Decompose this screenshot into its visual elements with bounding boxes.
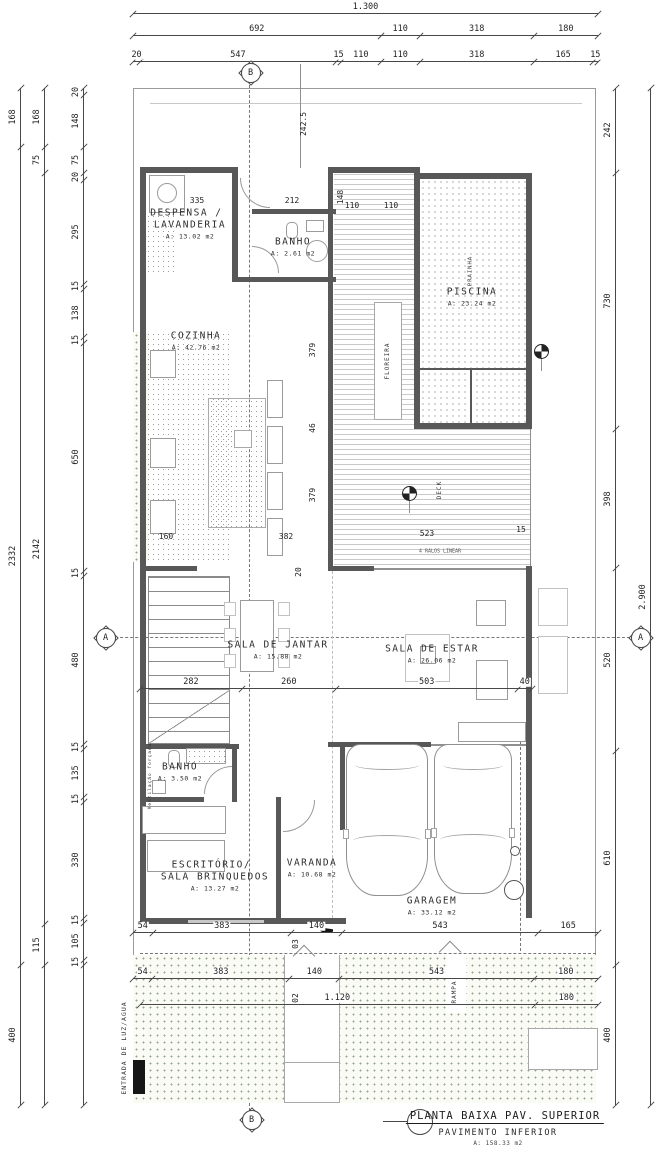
- deck-edge: [530, 429, 531, 566]
- dim-value: 610: [604, 849, 613, 866]
- inline-dim: 335: [189, 197, 205, 205]
- dim-value: 318: [468, 25, 485, 34]
- appliance: [150, 500, 176, 534]
- tiny-note: 4 RALOS LINEAR: [419, 549, 461, 555]
- room-label-jantar: SALA DE JANTARA: 15.88 m2: [227, 640, 328, 661]
- inline-dim: 382: [278, 533, 294, 541]
- office-sofa: [142, 806, 226, 834]
- dim-value: 318: [468, 51, 485, 60]
- room-label-varanda: VARANDAA: 10.68 m2: [287, 858, 338, 879]
- room-name: VARANDA: [287, 858, 338, 870]
- dim-value: 180: [558, 994, 575, 1003]
- dim-value: 242: [604, 122, 613, 139]
- wall-jantar-stub-mid: [328, 566, 374, 571]
- cabinet: [267, 426, 283, 464]
- column-circle: [510, 846, 520, 856]
- dim-value: 15: [332, 51, 344, 60]
- utility-box: [528, 1028, 598, 1070]
- dim-value: 54: [137, 968, 149, 977]
- car-windshield: [440, 834, 505, 846]
- room-label-garagem: GARAGEMA: 33.12 m2: [407, 896, 458, 917]
- wall-garage-left: [340, 742, 345, 830]
- dim-value: 2.900: [639, 583, 648, 611]
- dim-line-right-outer: [650, 88, 651, 1105]
- room-label-estar: SALA DE ESTARA: 26.06 m2: [385, 644, 479, 665]
- inline-dim: 110: [383, 202, 399, 210]
- car-mirror: [431, 828, 437, 838]
- car-rear-window: [443, 760, 504, 770]
- dim-line-left-outer: [20, 88, 21, 1105]
- dim-line-left-inner: [83, 88, 84, 1105]
- dim-value: 110: [392, 51, 409, 60]
- dining-table: [240, 600, 274, 672]
- dim-value: 383: [212, 968, 229, 977]
- dim-value: 1.300: [352, 3, 380, 12]
- dim-line-top-2: [133, 35, 598, 36]
- room-label-banho1: BANHOA: 2.61 m2: [271, 237, 315, 258]
- dim-value: 168: [9, 109, 18, 126]
- dim-value: 40: [519, 678, 531, 687]
- dim-value: 730: [604, 292, 613, 309]
- dim-value: 165: [559, 922, 576, 931]
- wall-banho1-bottom: [232, 277, 336, 282]
- drawing-subtitle: PAVIMENTO INFERIOR: [438, 1128, 557, 1138]
- vertical-label: DECK: [437, 481, 443, 499]
- dim-value: 148: [72, 112, 81, 129]
- room-name: ESCRITÓRIO/: [161, 860, 269, 872]
- dim-value: 180: [557, 25, 574, 34]
- pool-divider-h: [420, 368, 526, 370]
- inline-dim: 379: [309, 342, 317, 358]
- room-name: LAVANDERIA: [150, 220, 229, 232]
- room-area: A: 13.27 m2: [161, 884, 269, 892]
- dim-value: 650: [72, 448, 81, 465]
- room-area: A: 3.50 m2: [158, 774, 202, 782]
- dim-value: 543: [431, 922, 448, 931]
- room-area: A: 10.68 m2: [287, 870, 338, 878]
- vertical-label: RAMPA: [452, 980, 458, 1003]
- dim-value: 2142: [33, 538, 42, 560]
- room-area: A: 23.24 m2: [447, 299, 498, 307]
- dim-line-left-mid: [44, 88, 45, 1105]
- side-unit: [538, 636, 568, 694]
- car: [346, 744, 428, 896]
- room-area: A: 2.61 m2: [271, 249, 315, 257]
- car: [434, 744, 512, 894]
- room-label-escritorio: ESCRITÓRIO/ SALA BRINQUEDOSA: 13.27 m2: [161, 860, 269, 893]
- room-label-despensa: DESPENSA / LAVANDERIAA: 13.02 m2: [150, 208, 229, 241]
- wall-varanda-left: [276, 797, 281, 918]
- dim-value: 20: [72, 171, 81, 183]
- sofa: [476, 660, 508, 700]
- tree-stem: [541, 359, 542, 371]
- dim-line-top-total: [133, 13, 598, 14]
- dim-value: 503: [418, 678, 435, 687]
- dim-value: 295: [72, 223, 81, 240]
- dim-value: 110: [392, 25, 409, 34]
- dim-value: 15: [72, 280, 81, 292]
- dim-value: 140: [306, 968, 323, 977]
- inline-dim: 20: [295, 566, 303, 578]
- cabinet: [267, 472, 283, 510]
- wall-banho1-top: [252, 209, 336, 214]
- wall-top-left: [140, 167, 238, 173]
- projection-line-yard: [140, 953, 596, 954]
- dim-value: 383: [213, 922, 230, 931]
- column-circle: [504, 880, 524, 900]
- inline-dim: 242.5: [300, 111, 308, 137]
- marker-letter: A: [96, 628, 116, 648]
- room-name: GARAGEM: [407, 896, 458, 908]
- dim-value: 135: [72, 764, 81, 781]
- dim-line-bottom-1: [133, 932, 598, 933]
- dim-value: 15: [589, 51, 601, 60]
- inline-dim: 523: [419, 530, 435, 538]
- room-name: DESPENSA /: [150, 208, 229, 220]
- dim-value: 400: [604, 1026, 613, 1043]
- marker-letter: A: [631, 628, 651, 648]
- dim-value: 138: [72, 304, 81, 321]
- dim-value: 15: [72, 956, 81, 968]
- car-mirror: [509, 828, 515, 838]
- armchair: [476, 600, 506, 626]
- dim-value: 110: [352, 51, 369, 60]
- room-name: PISCINA: [447, 287, 498, 299]
- car-windshield: [353, 835, 422, 847]
- section-marker-a: A: [92, 624, 118, 650]
- tree-icon: [402, 486, 417, 501]
- room-area: A: 15.88 m2: [227, 652, 328, 660]
- cabinet-bench: [458, 722, 526, 742]
- marker-letter: B: [242, 1110, 262, 1130]
- vertical-label: FLOREIRA: [385, 343, 391, 380]
- car-rear-window: [355, 760, 419, 770]
- dim-value: 2332: [9, 545, 18, 567]
- dim-value: 75: [33, 154, 42, 166]
- inline-dim: 03: [292, 938, 300, 950]
- setback-line: [150, 103, 582, 104]
- dim-value: 15: [72, 567, 81, 579]
- room-area: A: 42.76 m2: [171, 343, 222, 351]
- staircase-diagonal: [148, 690, 230, 744]
- appliance: [150, 350, 176, 378]
- entry-porch: [284, 1062, 340, 1103]
- room-label-piscina: PISCINAA: 23.24 m2: [447, 287, 498, 308]
- room-name: BANHO: [271, 237, 315, 249]
- dim-value: 15: [72, 914, 81, 926]
- dim-line-right-inner: [615, 88, 616, 1105]
- dim-value: 165: [554, 51, 571, 60]
- car-mirror: [343, 829, 349, 839]
- dim-value: 180: [557, 968, 574, 977]
- dim-value: 115: [33, 936, 42, 953]
- side-unit: [538, 588, 568, 626]
- vertical-label: ENTRADA DE LUZ/AGUA: [121, 1001, 128, 1094]
- deck-hatch-lower: [334, 429, 530, 566]
- dim-value: 1.120: [323, 994, 351, 1003]
- washer-drum: [157, 183, 177, 203]
- sliding-door-line: [374, 568, 526, 570]
- dim-value: 15: [72, 334, 81, 346]
- dim-value: 520: [604, 651, 613, 668]
- inline-dim: 46: [309, 422, 317, 434]
- room-label-banho2: BANHOA: 3.50 m2: [158, 762, 202, 783]
- section-marker-b: B: [237, 59, 263, 85]
- dim-line-bottom-2: [133, 978, 598, 979]
- kitchen-island: [208, 398, 266, 528]
- pool-divider-v: [470, 370, 472, 423]
- sink: [306, 220, 324, 232]
- marker-letter: B: [241, 63, 261, 83]
- room-name: COZINHA: [171, 331, 222, 343]
- dim-line-bottom-3: [140, 1004, 598, 1005]
- dim-value: 75: [72, 154, 81, 166]
- dim-value: 20: [130, 51, 142, 60]
- wall-despensa-right: [232, 167, 238, 282]
- dim-value: 260: [280, 678, 297, 687]
- island-sink: [234, 430, 252, 448]
- dim-value: 105: [72, 933, 81, 950]
- room-name: BANHO: [158, 762, 202, 774]
- wall-mid-vertical: [328, 167, 333, 566]
- dim-value: 398: [604, 490, 613, 507]
- tree-icon: [534, 344, 549, 359]
- dim-value: 168: [33, 109, 42, 126]
- dim-value: 543: [428, 968, 445, 977]
- section-marker-a: A: [627, 624, 653, 650]
- room-label-cozinha: COZINHAA: 42.76 m2: [171, 331, 222, 352]
- vertical-label: PRAINHA: [468, 256, 474, 286]
- dim-value: 54: [137, 922, 149, 931]
- floor-plan: PLANTA BAIXA PAV. SUPERIOR PAVIMENTO INF…: [0, 0, 670, 1150]
- dim-value: 20: [72, 85, 81, 97]
- dim-value: 400: [9, 1026, 18, 1043]
- dim-value: 140: [308, 922, 325, 931]
- room-area: A: 33.12 m2: [407, 908, 458, 916]
- inline-dim: 379: [309, 487, 317, 503]
- chair: [224, 602, 236, 616]
- dim-value: 282: [182, 678, 199, 687]
- cabinet: [267, 380, 283, 418]
- section-marker-b: B: [238, 1106, 264, 1132]
- inline-dim: 02: [292, 992, 300, 1004]
- dim-line-top-3: [133, 61, 598, 62]
- appliance: [150, 438, 176, 468]
- drawing-title: PLANTA BAIXA PAV. SUPERIOR: [406, 1110, 604, 1124]
- room-area: A: 13.02 m2: [150, 232, 229, 240]
- wall-top-mid: [328, 167, 420, 173]
- utility-entry-box: [133, 1060, 145, 1094]
- inline-dim: 110: [344, 202, 360, 210]
- inline-dim: 212: [284, 197, 300, 205]
- dim-value: 15: [72, 793, 81, 805]
- room-name: SALA DE JANTAR: [227, 640, 328, 652]
- vertical-label: Ventilação forçada: [149, 743, 154, 810]
- inline-dim: 148: [337, 189, 345, 205]
- wall-banho2-right: [232, 744, 237, 802]
- room-name: SALA BRINQUEDOS: [161, 872, 269, 884]
- dim-value: 330: [72, 851, 81, 868]
- wall-jantar-stub-left: [140, 566, 197, 571]
- inline-dim: 160: [158, 533, 174, 541]
- wall-right-lower: [526, 566, 532, 918]
- chair: [278, 602, 290, 616]
- room-area: A: 26.06 m2: [385, 656, 479, 664]
- projection-line-garage: [520, 742, 521, 951]
- inline-dim: 15: [515, 526, 527, 534]
- tree-stem: [409, 501, 410, 513]
- dim-value: 480: [72, 651, 81, 668]
- room-name: SALA DE ESTAR: [385, 644, 479, 656]
- dim-value: 15: [72, 741, 81, 753]
- dim-value: 547: [229, 51, 246, 60]
- drawing-area: A: 158.33 m2: [473, 1140, 522, 1147]
- dim-value: 692: [248, 25, 265, 34]
